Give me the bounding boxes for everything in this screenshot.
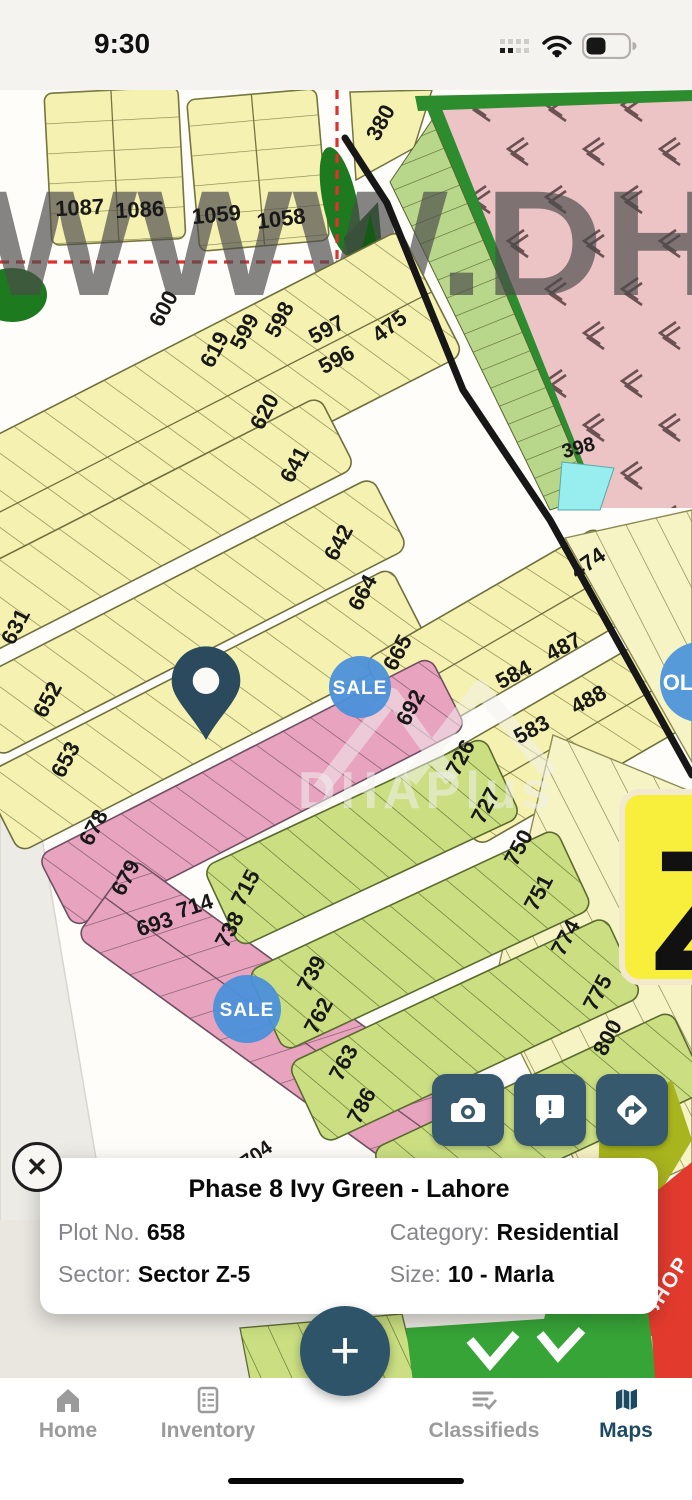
svg-text:SALE: SALE (333, 678, 388, 699)
cellular-dots-icon (500, 39, 532, 54)
directions-button[interactable] (596, 1074, 668, 1146)
phone-screen: 9:30 (0, 0, 692, 1500)
sector-field: Sector:Sector Z-5 (58, 1261, 390, 1288)
plus-icon: + (330, 1325, 360, 1377)
card-title: Phase 8 Ivy Green - Lahore (40, 1175, 658, 1204)
alert-bubble-icon: ! (530, 1090, 570, 1130)
tab-inventory[interactable]: Inventory (133, 1386, 283, 1443)
watermark-brand-text: DHAPlus (298, 762, 555, 820)
size-field: Size:10 - Marla (390, 1261, 640, 1288)
svg-text:!: ! (547, 1098, 553, 1119)
maps-icon (611, 1386, 641, 1414)
category-field: Category:Residential (390, 1219, 640, 1246)
sector-z-panel: Z (622, 792, 692, 1007)
battery-icon (582, 33, 638, 59)
inventory-icon (193, 1386, 223, 1414)
card-row: Sector:Sector Z-5 Size:10 - Marla (58, 1261, 640, 1288)
add-button[interactable]: + (300, 1306, 390, 1396)
status-time: 9:30 (94, 28, 150, 60)
tab-maps[interactable]: Maps (551, 1386, 692, 1443)
wifi-icon (542, 35, 572, 58)
home-indicator[interactable] (228, 1478, 464, 1484)
tab-classifieds[interactable]: Classifieds (409, 1386, 559, 1443)
camera-button[interactable] (432, 1074, 504, 1146)
status-icons (500, 33, 638, 59)
close-icon: ✕ (26, 1154, 48, 1180)
camera-icon (448, 1090, 488, 1130)
plot-no-field: Plot No.658 (58, 1219, 390, 1246)
close-card-button[interactable]: ✕ (12, 1142, 62, 1192)
feedback-button[interactable]: ! (514, 1074, 586, 1146)
sector-overlay-label: Z (650, 815, 692, 1007)
svg-text:OL: OL (663, 670, 692, 695)
tab-home[interactable]: Home (0, 1386, 143, 1443)
status-bar: 9:30 (0, 0, 692, 90)
plot-label: 1087 (55, 194, 105, 222)
sale-badge[interactable]: SALE (329, 656, 391, 718)
card-row: Plot No.658 Category:Residential (58, 1219, 640, 1246)
plot-label: 1059 (191, 200, 242, 229)
classifieds-icon (469, 1386, 499, 1414)
directions-icon (612, 1090, 652, 1130)
sale-badge[interactable]: SALE (213, 975, 281, 1043)
home-icon (53, 1386, 83, 1414)
svg-text:SALE: SALE (220, 1000, 275, 1021)
plot-label: 1086 (115, 196, 165, 224)
plot-info-card: Phase 8 Ivy Green - Lahore Plot No.658 C… (40, 1158, 658, 1314)
